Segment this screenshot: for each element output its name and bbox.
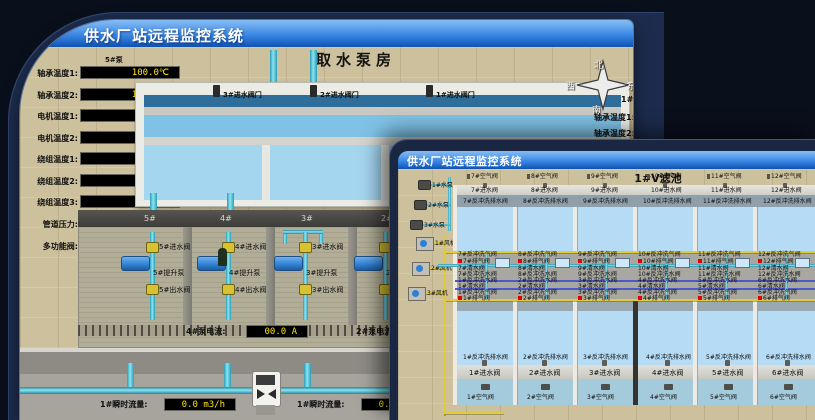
pump-group-label: 5#泵 (105, 56, 123, 64)
reading-row: 轴承温度1:100.0℃ (28, 66, 174, 80)
compass-east: 东 (627, 79, 633, 92)
flow-meter-body (268, 389, 276, 399)
valve-label: 9#进水阀 (591, 187, 618, 194)
clean-water-tank-icon (795, 258, 810, 268)
flow-meter-head (256, 375, 275, 385)
bay-wall (183, 227, 192, 325)
inlet-gate-valve-1-icon[interactable] (426, 85, 433, 97)
bay-number: 5# (144, 214, 156, 223)
current-value: 00.0 A (246, 325, 308, 338)
valve-label: 1#空气阀 (467, 394, 494, 401)
valve-label: 2#空气阀 (527, 394, 554, 401)
bay-number: 4# (220, 214, 232, 223)
inlet-valve-icon[interactable] (146, 242, 159, 253)
front-window-inner: 供水厂站远程监控系统 1#V滤池 1#水泵 2#水泵 3#水泵 (398, 151, 815, 420)
outlet-valve-icon[interactable] (299, 284, 312, 295)
valve-label: 8#反冲洗排水阀 (523, 198, 568, 205)
clean-water-tank-icon (675, 258, 690, 268)
filter-cell-top: 7#空气阀 7#进水阀 7#反冲洗排水阀 (455, 169, 515, 251)
pump-label: 3#水泵 (424, 222, 445, 229)
filter-cell-top: 11#空气阀 11#进水阀 11#反冲洗排水阀 (695, 169, 755, 251)
gallery-column: 7#反冲洗气阀 7#排气阀 7#清水阀 7#反冲洗水阀 1#反冲洗水阀 1#清水… (455, 251, 515, 301)
filter-cell-bottom: 6#反冲洗排水阀 6#进水阀 6#空气阀 (758, 301, 815, 420)
valve-label: 3#空气阀 (587, 394, 614, 401)
bay-number: 3# (301, 214, 313, 223)
valve-label: 11#空气阀 (707, 173, 742, 180)
tank-water-mid (144, 115, 621, 137)
tank-walkway (144, 107, 621, 115)
filter-cell-top: 10#空气阀 10#进水阀 10#反冲洗排水阀 (635, 169, 695, 251)
filter-cell-top: 12#空气阀 12#进水阀 12#反冲洗排水阀 (755, 169, 815, 251)
valve-icon[interactable] (602, 360, 607, 366)
valve-label: 9#空气阀 (587, 173, 618, 180)
clean-water-tank-icon (555, 258, 570, 268)
pump-icon[interactable] (414, 200, 427, 210)
tank-divider (381, 145, 389, 200)
fan-icon[interactable] (412, 262, 430, 276)
pipe (270, 50, 277, 84)
clean-water-tank-icon (495, 258, 510, 268)
pump-icon[interactable] (418, 180, 431, 190)
scada-screen: 供水厂站远程监控系统 取水泵房 5#泵 轴承温度1:100.0℃ 轴承温度2:1… (0, 0, 815, 420)
valve-label: 7#进水阀 (471, 187, 498, 194)
fan-icon[interactable] (408, 287, 426, 301)
scene-title: 取水泵房 (316, 49, 396, 70)
valve-label: 8#进水阀 (531, 187, 558, 194)
valve-label: 6#空气阀 (770, 394, 797, 401)
valve-label: 7#空气阀 (467, 173, 498, 180)
valve-label: 2#进水阀 (529, 369, 560, 377)
channel-pump-icon[interactable] (601, 384, 610, 390)
flow-label: 1#瞬时流量: (100, 400, 147, 409)
valve-label: 4#出水阀 (235, 286, 266, 294)
inlet-gate-label: 2#进水阀门 (320, 91, 359, 99)
channel-pump-icon[interactable] (541, 384, 550, 390)
reading-label: 轴承温度1: (37, 68, 78, 79)
valve-label: 10#反冲洗排水阀 (643, 198, 692, 205)
flow-meter-icon[interactable] (252, 371, 281, 407)
valve-label: 12#空气阀 (767, 173, 802, 180)
valve-icon[interactable] (725, 360, 730, 366)
fan-label: 3#风机 (427, 290, 448, 297)
valve-icon[interactable] (482, 360, 487, 366)
filter-cell-bottom: 3#反冲洗排水阀 3#进水阀 3#空气阀 (575, 301, 635, 420)
front-window-titlebar[interactable]: 供水厂站远程监控系统 (398, 151, 815, 169)
pump-icon[interactable] (354, 256, 383, 271)
reading-label: 电机温度1: (37, 111, 78, 122)
filter-cell-bottom: 1#反冲洗排水阀 1#进水阀 1#空气阀 (455, 301, 515, 420)
reading-value: 100.0℃ (80, 66, 180, 79)
back-window-title: 供水厂站远程监控系统 (84, 25, 244, 46)
reading-label: 管道压力: (43, 219, 78, 230)
pump-label: 3#提升泵 (306, 269, 337, 277)
valve-label: 11#反冲洗排水阀 (703, 198, 752, 205)
reading-label: 多功能阀: (43, 241, 78, 252)
inlet-gate-valve-3-icon[interactable] (213, 85, 220, 97)
valve-icon[interactable] (542, 360, 547, 366)
filter-cell-bottom: 5#反冲洗排水阀 5#进水阀 5#空气阀 (698, 301, 758, 420)
reading-label: 轴承温度2: (594, 129, 633, 138)
valve-icon[interactable] (665, 360, 670, 366)
inlet-valve-icon[interactable] (299, 242, 312, 253)
valve-label: 5#出水阀 (159, 286, 190, 294)
flow-meter-body (257, 389, 265, 399)
front-window-title: 供水厂站远程监控系统 (407, 153, 522, 169)
tank-divider (262, 145, 270, 200)
flow-value: 0.0 m3/h (164, 398, 236, 411)
valve-label: 3#出水阀 (312, 286, 343, 294)
pump-label: 2#水泵 (428, 202, 449, 209)
valve-label: 4#进水阀 (235, 243, 266, 251)
valve-icon[interactable] (785, 360, 790, 366)
pump-icon[interactable] (274, 256, 303, 271)
valve-label: 3#进水阀 (312, 243, 343, 251)
operator-figure (218, 248, 227, 266)
valve-label: 12#进水阀 (771, 187, 802, 194)
pump-icon[interactable] (410, 220, 423, 230)
clean-water-tank-icon (735, 258, 750, 268)
filter-cell-top: 9#空气阀 9#进水阀 9#反冲洗排水阀 (575, 169, 635, 251)
channel-pump-icon[interactable] (784, 384, 793, 390)
valve-label: 12#反冲洗排水阀 (763, 198, 812, 205)
fan-icon[interactable] (416, 237, 434, 251)
valve-label: 11#进水阀 (711, 187, 742, 194)
outlet-valve-icon[interactable] (222, 284, 235, 295)
pump-label: 5#提升泵 (153, 269, 184, 277)
valve-label: 4#进水阀 (652, 369, 683, 377)
valve-label: 6#进水阀 (772, 369, 803, 377)
bay-wall (348, 227, 357, 325)
clean-water-tank-icon (615, 258, 630, 268)
pipe (150, 193, 157, 211)
front-window-v-filter: 供水厂站远程监控系统 1#V滤池 1#水泵 2#水泵 3#水泵 (390, 140, 815, 420)
valve-label: 3#进水阀 (589, 369, 620, 377)
reading-label: 绕组温度1: (37, 154, 78, 165)
valve-label: 10#空气阀 (647, 173, 682, 180)
pump-label: 4#提升泵 (229, 269, 260, 277)
pipe (310, 50, 317, 84)
reading-label: 轴承温度2: (37, 90, 78, 101)
valve-label: 5#进水阀 (159, 243, 190, 251)
flow-label: 1#瞬时流量: (297, 400, 344, 409)
pipe (283, 234, 287, 244)
valve-label: 5#空气阀 (710, 394, 737, 401)
gallery-column: 11#反冲洗气阀 11#排气阀 11#清水阀 11#反冲洗水阀 5#反冲洗水阀 … (695, 251, 755, 301)
inlet-gate-label: 1#进水阀门 (436, 91, 475, 99)
channel-pump-icon[interactable] (664, 384, 673, 390)
gallery-column: 8#反冲洗气阀 8#排气阀 8#清水阀 8#反冲洗水阀 2#反冲洗水阀 2#清水… (515, 251, 575, 301)
channel-pump-icon[interactable] (724, 384, 733, 390)
inlet-gate-label: 3#进水阀门 (223, 91, 262, 99)
filter-cell-bottom: 4#反冲洗排水阀 4#进水阀 4#空气阀 (638, 301, 698, 420)
v-filter-scene: 1#V滤池 1#水泵 2#水泵 3#水泵 1#风机 (398, 169, 815, 420)
inlet-gate-valve-2-icon[interactable] (310, 85, 317, 97)
filter-cell-top: 8#空气阀 8#进水阀 8#反冲洗排水阀 (515, 169, 575, 251)
pipe (227, 193, 234, 211)
valve-label: 4#空气阀 (650, 394, 677, 401)
valve-label: 7#反冲洗排水阀 (463, 198, 508, 205)
compass-west: 西 (566, 79, 575, 92)
air-pipe (444, 235, 446, 415)
reading-label: 绕组温度3: (37, 197, 78, 208)
reading-label: 绕组温度2: (37, 176, 78, 187)
flow-meter-base (256, 405, 275, 415)
fan-core (420, 240, 427, 247)
outlet-valve-icon[interactable] (146, 284, 159, 295)
pump-group-label-right: 1#泵 (621, 95, 633, 104)
valve-label: 5#进水阀 (712, 369, 743, 377)
current-label: 4#泵电流: (186, 327, 225, 336)
pump-icon[interactable] (121, 256, 150, 271)
back-window-titlebar[interactable]: 供水厂站远程监控系统 (20, 20, 633, 47)
gallery-column: 12#反冲洗气阀 12#排气阀 12#清水阀 12#反冲洗水阀 6#反冲洗水阀 … (755, 251, 815, 301)
valve-label: 10#进水阀 (651, 187, 682, 194)
valve-label: 9#反冲洗排水阀 (583, 198, 628, 205)
bay-wall (266, 227, 275, 325)
reading-label: 轴承温度1: (594, 113, 633, 122)
filter-cell-bottom: 2#反冲洗排水阀 2#进水阀 2#空气阀 (515, 301, 575, 420)
pump-label: 1#水泵 (432, 182, 453, 189)
channel-pump-icon[interactable] (481, 384, 490, 390)
compass-north: 北 (594, 58, 603, 71)
gallery-column: 9#反冲洗气阀 9#排气阀 9#清水阀 9#反冲洗水阀 3#反冲洗水阀 3#清水… (575, 251, 635, 301)
fan-core (412, 290, 419, 297)
valve-label: 8#空气阀 (527, 173, 558, 180)
valve-label: 1#进水阀 (469, 369, 500, 377)
fan-core (416, 265, 423, 272)
gallery-column: 10#反冲洗气阀 10#排气阀 10#清水阀 10#反冲洗水阀 4#反冲洗水阀 … (635, 251, 695, 301)
reading-label: 电机温度2: (37, 133, 78, 144)
